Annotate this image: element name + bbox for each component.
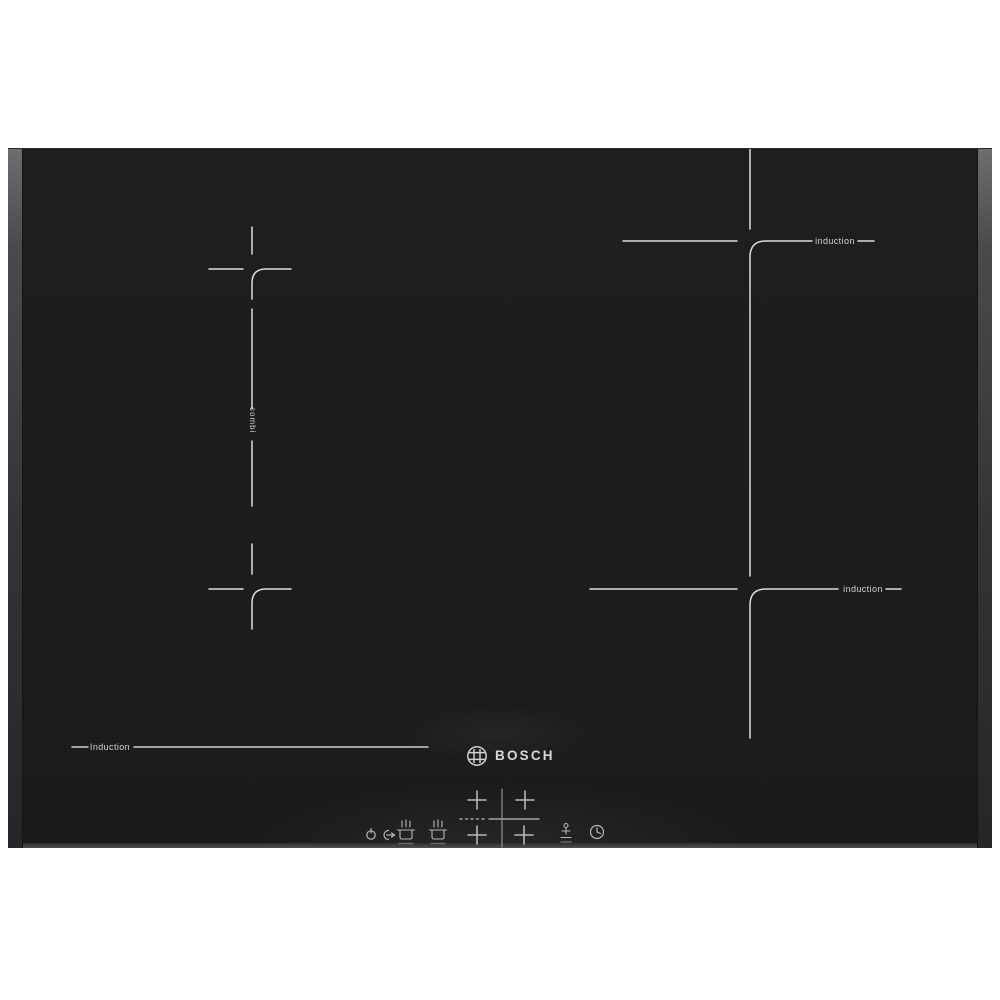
corner [252, 589, 291, 629]
pan-sensor-icon [430, 820, 447, 844]
plus-key-rear-left [468, 791, 486, 809]
corner [750, 241, 812, 576]
product-photo: induction induction Induction combi BOSC… [0, 0, 1000, 1000]
cooktop-glass: induction induction Induction combi BOSC… [8, 148, 992, 848]
control-panel [367, 789, 604, 847]
plus-key-rear-right [516, 791, 534, 809]
zone-markings [8, 149, 992, 848]
bosch-wordmark: BOSCH [495, 745, 555, 767]
zone-label-induction-front-left: Induction [88, 742, 132, 752]
zone-label-induction-front-right: induction [838, 584, 888, 594]
plus-key-front-right [515, 826, 533, 844]
corner [252, 269, 291, 299]
bosch-armature-icon [466, 745, 488, 767]
clock-timer-icon [591, 826, 604, 839]
bosch-logo: BOSCH [466, 745, 555, 767]
combi-zone-front-marking [209, 589, 291, 629]
pan-sensor-icon [398, 820, 415, 844]
power-restart-icon [367, 829, 395, 840]
combi-zone-label: combi [248, 407, 256, 443]
induction-zone-rear-marking [623, 149, 874, 576]
pause-function-icon [561, 824, 571, 843]
combi-zone-rear-marking [209, 227, 291, 409]
corner [750, 589, 838, 738]
plus-key-front-left [468, 826, 486, 844]
zone-label-induction-rear-right: induction [810, 236, 860, 246]
induction-zone-front-marking [590, 589, 901, 738]
